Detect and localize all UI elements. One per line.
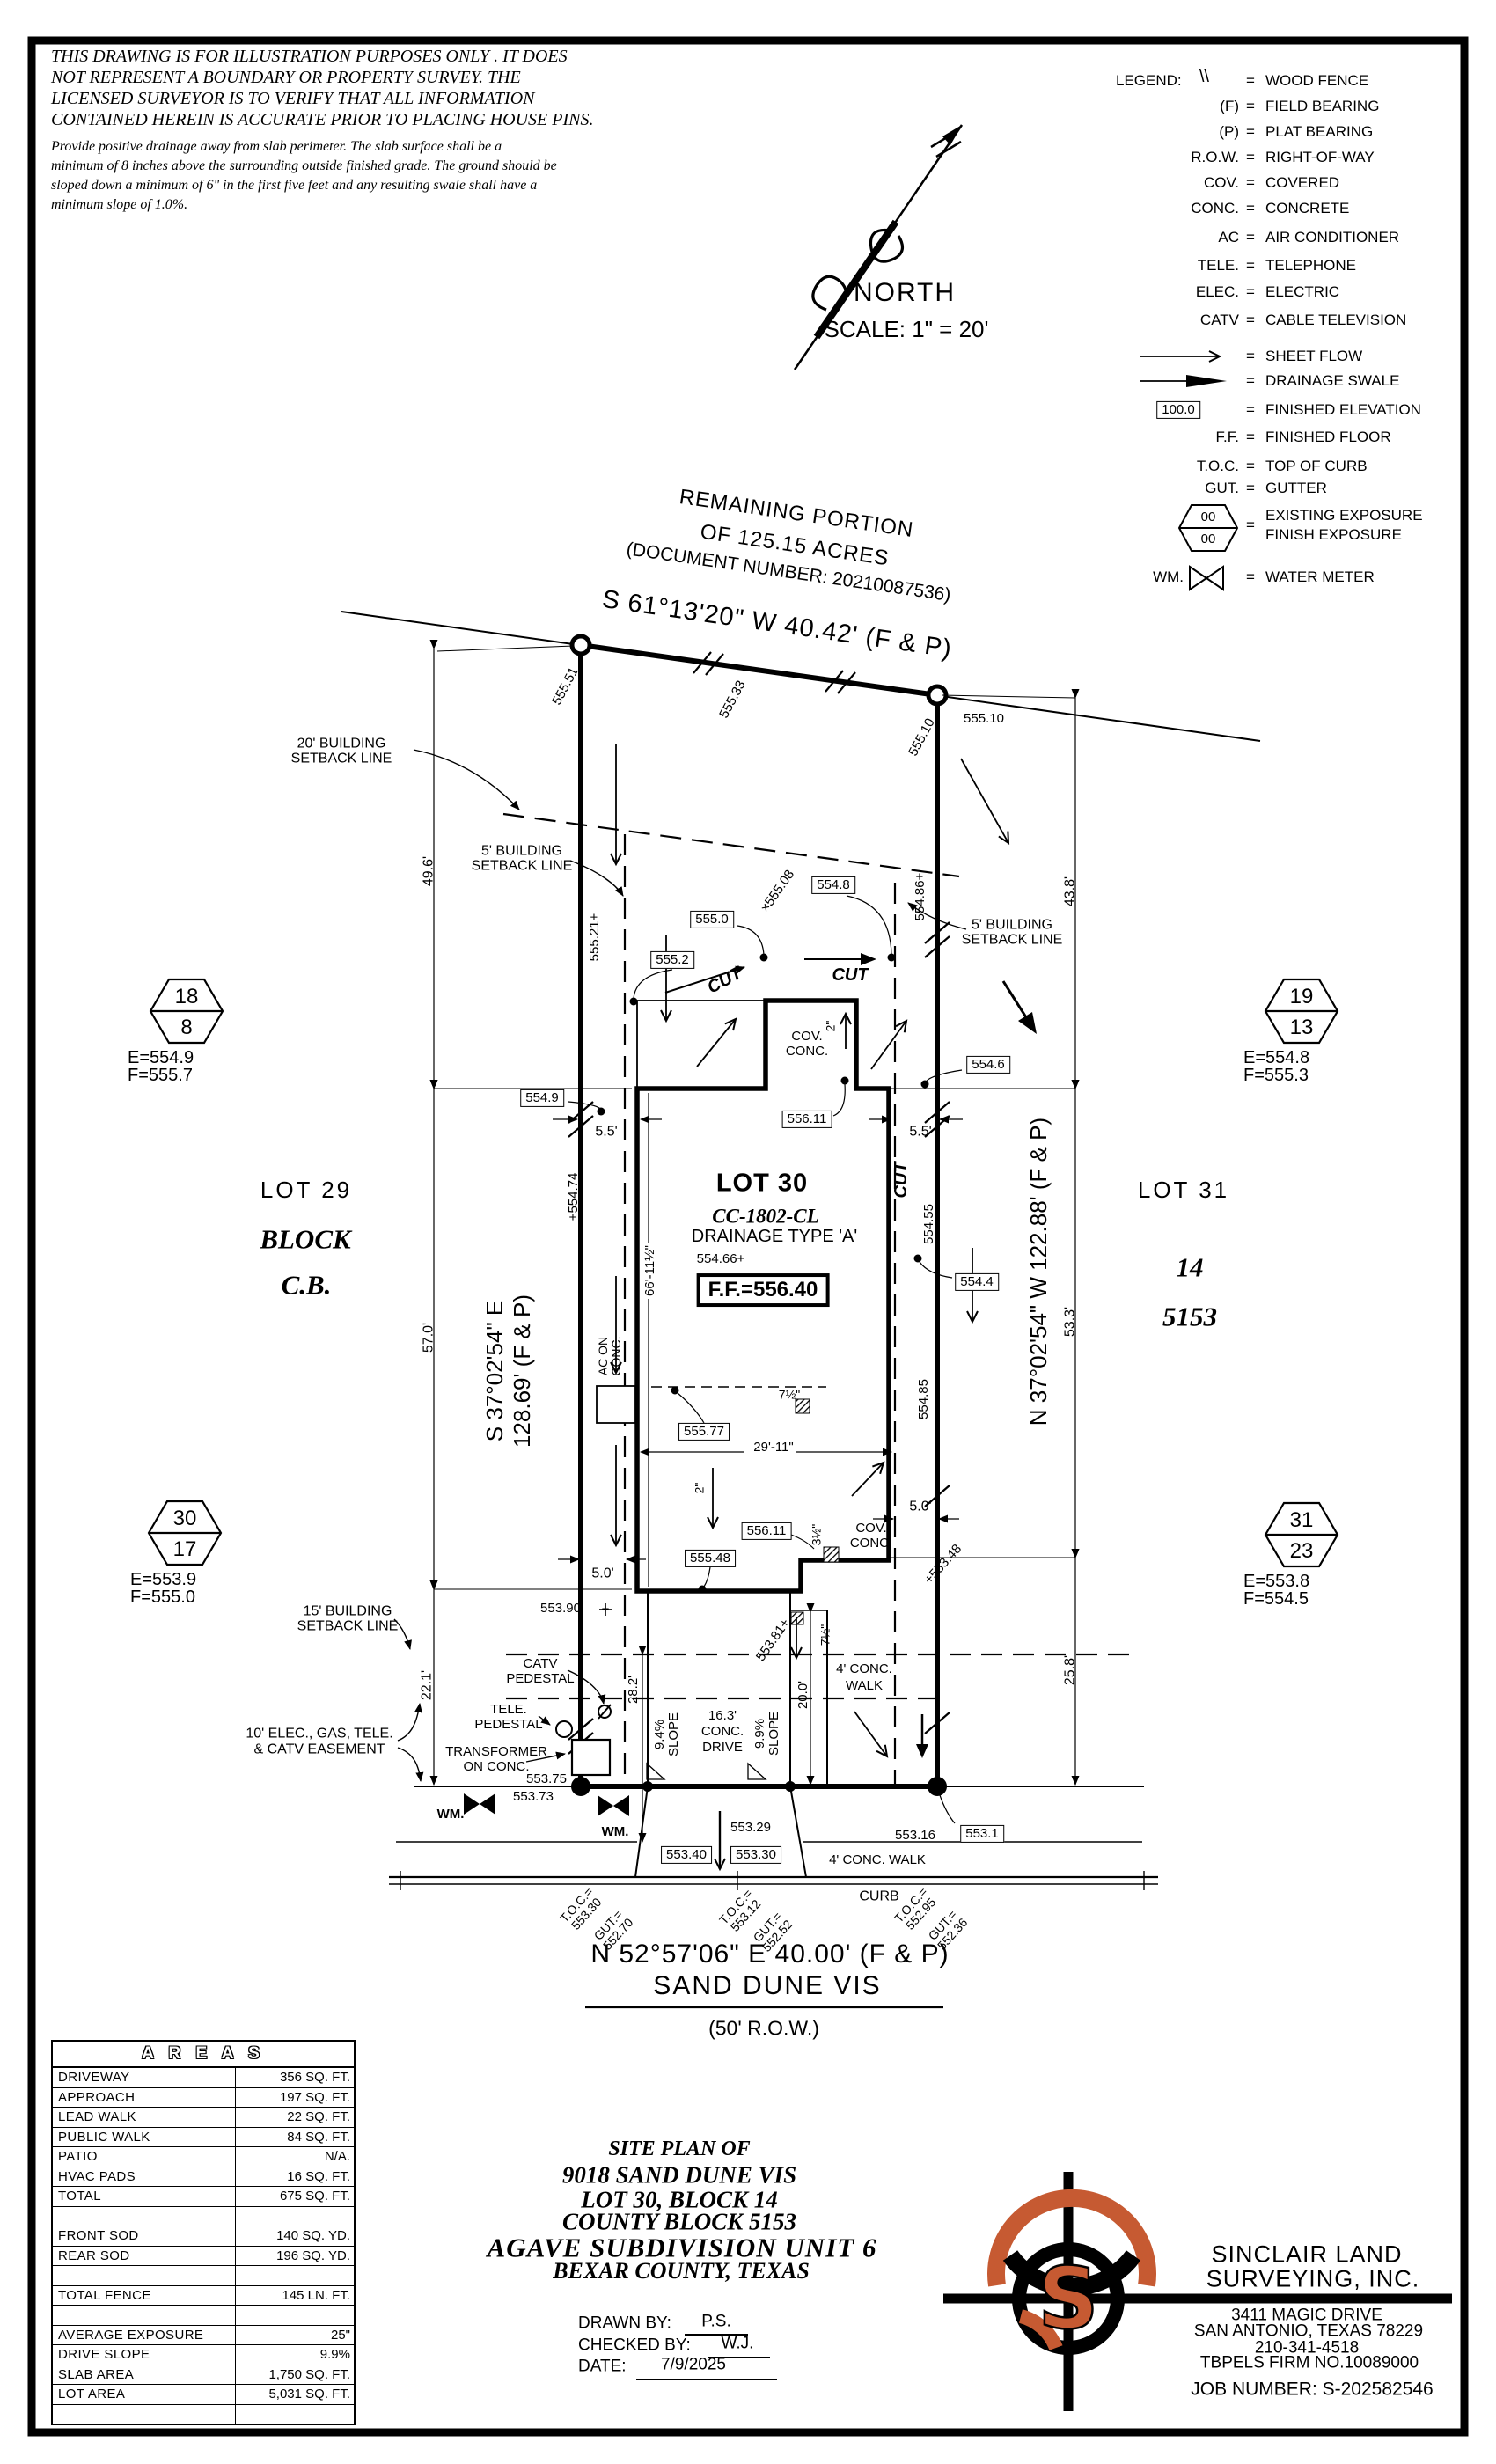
water-meter-label: WM. [602, 1825, 629, 1839]
dim-25-8: 25.8' [1062, 1655, 1077, 1685]
row-value: N/A. [235, 2147, 354, 2167]
dim-2in: 2" [693, 1483, 706, 1494]
legend-def: FIELD BEARING [1265, 99, 1379, 114]
scale-label: SCALE: 1" = 20' [825, 317, 989, 341]
pad-elevation: 554.66+ [697, 1252, 745, 1266]
table-row: DRIVEWAY356 SQ. FT. [53, 2067, 354, 2087]
legend-def: SHEET FLOW [1265, 348, 1362, 364]
row-label: LOT AREA [53, 2385, 235, 2404]
hex-finish: 23 [1290, 1540, 1314, 1563]
setback-20-label: SETBACK LINE [291, 751, 392, 766]
row-label: REAR SOD [53, 2247, 235, 2266]
legend-sym: CATV [1200, 312, 1239, 328]
row-label: APPROACH [53, 2088, 235, 2108]
logo-s: S [1038, 2249, 1098, 2348]
slope-word: SLOPE [767, 1712, 781, 1756]
row-value: 5,031 SQ. FT. [235, 2385, 354, 2404]
table-row: PUBLIC WALK84 SQ. FT. [53, 2127, 354, 2147]
block-number: 14 [1177, 1252, 1204, 1281]
setback-15-label: 15' BUILDING [304, 1603, 392, 1618]
equals: = [1246, 150, 1255, 165]
row-label [53, 2306, 235, 2325]
spot-elevation: 554.55 [922, 1204, 936, 1244]
legend-sym: R.O.W. [1191, 150, 1239, 165]
legend-def: CABLE TELEVISION [1265, 312, 1406, 328]
drainage-note-line: sloped down a minimum of 6" in the first… [51, 178, 537, 193]
bearing-east-line: N 37°02'54" W 122.88' (F & P) [1026, 1118, 1051, 1426]
cut-label: CUT [832, 966, 868, 986]
row-width: (50' R.O.W.) [708, 2018, 819, 2040]
row-value [235, 2207, 354, 2226]
drive-slope-east: 9.9% SLOPE [753, 1712, 781, 1756]
ac-label-1: AC ON [597, 1336, 610, 1375]
finished-elevation: 555.48 [685, 1550, 736, 1567]
table-row: DRIVE SLOPE9.9% [53, 2344, 354, 2365]
hex-f-value: F=555.0 [130, 1588, 195, 1608]
street-bearing: N 52°57'06" E 40.00' (F & P) [590, 1940, 949, 1969]
legend-sym: TELE. [1198, 258, 1239, 274]
covered-conc-label: COV. [855, 1522, 886, 1536]
plus-tick: + [602, 1602, 610, 1617]
dim-53-3: 53.3' [1062, 1307, 1077, 1337]
row-label: LEAD WALK [53, 2108, 235, 2127]
lot30-label: LOT 30 [716, 1170, 808, 1197]
county-block-line: COUNTY BLOCK 5153 [562, 2209, 796, 2234]
finished-elevation: 554.9 [520, 1089, 564, 1107]
row-value [235, 2405, 354, 2424]
hex-existing: 30 [173, 1507, 197, 1530]
street-name: SAND DUNE VIS [653, 1972, 881, 2000]
spot-elevation: 554.86+ [913, 873, 928, 921]
legend-sym: (F) [1220, 99, 1239, 114]
spot-elevation: 553.16 [895, 1829, 935, 1843]
row-value: 25" [235, 2326, 354, 2345]
county-block-number: 5153 [1162, 1302, 1217, 1331]
table-row: TOTAL675 SQ. FT. [53, 2186, 354, 2206]
spot-elevation: 553.75 [526, 1772, 567, 1786]
equals: = [1246, 429, 1255, 445]
table-row: APPROACH197 SQ. FT. [53, 2087, 354, 2108]
setback-5-label: SETBACK LINE [962, 932, 1063, 947]
equals: = [1246, 348, 1255, 364]
row-value: 9.9% [235, 2345, 354, 2365]
equals: = [1246, 569, 1255, 585]
lot29-label: LOT 29 [260, 1177, 352, 1202]
slope-word: SLOPE [667, 1712, 681, 1756]
legend-sym: WM. [1153, 569, 1184, 585]
row-label: DRIVEWAY [53, 2068, 235, 2087]
firm-name: SURVEYING, INC. [1206, 2266, 1420, 2292]
table-row: REAR SOD196 SQ. YD. [53, 2246, 354, 2266]
legend-def: COVERED [1265, 175, 1339, 191]
curb-label: CURB [859, 1888, 898, 1903]
easement-label: & CATV EASEMENT [253, 1742, 385, 1756]
row-label: FRONT SOD [53, 2226, 235, 2246]
equals: = [1246, 402, 1255, 418]
dim-29-11: 29'-11" [751, 1441, 796, 1455]
row-value: 1,750 SQ. FT. [235, 2365, 354, 2385]
bearing-west-1: S 37°02'54" E [481, 1294, 509, 1448]
equals: = [1246, 124, 1255, 140]
legend-def: WATER METER [1265, 569, 1375, 585]
equals: = [1246, 284, 1255, 300]
finished-elevation: 553.1 [960, 1825, 1004, 1843]
hex-finish: 17 [173, 1538, 197, 1561]
legend-sym: (P) [1219, 124, 1239, 140]
legend-def: CONCRETE [1265, 201, 1349, 216]
row-label [53, 2207, 235, 2226]
row-label [53, 2405, 235, 2424]
finished-elevation: 556.11 [782, 1111, 832, 1128]
table-row: LEAD WALK22 SQ. FT. [53, 2107, 354, 2127]
disclaimer-line: CONTAINED HEREIN IS ACCURATE PRIOR TO PL… [51, 111, 593, 130]
legend-def: FINISHED ELEVATION [1265, 402, 1421, 418]
row-label: TOTAL FENCE [53, 2286, 235, 2306]
finished-elevation: 554.4 [955, 1273, 999, 1291]
row-label: TOTAL [53, 2187, 235, 2206]
legend-def: TELEPHONE [1265, 258, 1356, 274]
dim-5-0: 5.0' [591, 1566, 613, 1580]
equals: = [1246, 480, 1255, 496]
legend-def: GUTTER [1265, 480, 1327, 496]
drawn-by-value: P.S. [701, 2314, 730, 2332]
finished-elevation: 554.6 [966, 1056, 1010, 1074]
spot-elevation: 554.85 [917, 1379, 931, 1419]
legend-sym: GUT. [1205, 480, 1239, 496]
spot-elevation: 555.21+ [588, 913, 602, 962]
table-row [53, 2404, 354, 2424]
firm-name: SINCLAIR LAND [1211, 2241, 1402, 2267]
bearing-west-line: S 37°02'54" E 128.69' (F & P) [481, 1294, 536, 1448]
row-value: 22 SQ. FT. [235, 2108, 354, 2127]
dim-20-0: 20.0' [796, 1681, 810, 1709]
legend-sym: CONC. [1191, 201, 1239, 216]
equals: = [1246, 230, 1255, 246]
legend-def: DRAINAGE SWALE [1265, 373, 1399, 389]
dim-3-5in: 3½" [810, 1524, 823, 1545]
hex-f-value: F=555.3 [1243, 1067, 1309, 1086]
hex-finish-value: 00 [1201, 532, 1216, 546]
disclaimer-line: LICENSED SURVEYOR IS TO VERIFY THAT ALL … [51, 90, 535, 109]
drainage-note-line: Provide positive drainage away from slab… [51, 139, 502, 154]
dim-22-1: 22.1' [419, 1670, 434, 1700]
disclaimer-line: THIS DRAWING IS FOR ILLUSTRATION PURPOSE… [51, 48, 568, 67]
equals: = [1246, 373, 1255, 389]
firm-license: TBPELS FIRM NO.10089000 [1200, 2355, 1419, 2373]
legend-def: FINISHED FLOOR [1265, 429, 1391, 445]
row-value [235, 2306, 354, 2325]
north-label: NORTH [854, 279, 956, 307]
setback-5-label: 5' BUILDING [481, 843, 562, 858]
date-label: DATE: [578, 2358, 627, 2377]
easement-label: 10' ELEC., GAS, TELE. [246, 1726, 392, 1741]
wood-fence-icon: \\ [1199, 68, 1209, 87]
areas-table: A R E A S DRIVEWAY356 SQ. FT. APPROACH19… [51, 2040, 356, 2425]
site-address: 9018 SAND DUNE VIS [562, 2162, 796, 2188]
hex-f-value: F=555.7 [128, 1067, 193, 1086]
checked-by-label: CHECKED BY: [578, 2337, 691, 2356]
table-row: FRONT SOD140 SQ. YD. [53, 2226, 354, 2246]
legend-sym: F.F. [1216, 429, 1239, 445]
equals: = [1246, 458, 1255, 474]
setback-15-label: SETBACK LINE [297, 1618, 399, 1633]
water-meter-label: WM. [437, 1808, 465, 1822]
block-label: BLOCK [260, 1224, 350, 1253]
spot-elevation: 553.73 [513, 1790, 554, 1804]
areas-title: A R E A S [53, 2042, 354, 2067]
legend-sym: T.O.C. [1197, 458, 1239, 474]
row-value: 196 SQ. YD. [235, 2247, 354, 2266]
finished-elevation: 553.30 [730, 1846, 781, 1864]
catv-pedestal-label: PEDESTAL [506, 1672, 574, 1686]
county-block-label: C.B. [282, 1270, 332, 1299]
row-label: PATIO [53, 2147, 235, 2167]
dim-49-6: 49.6' [421, 856, 436, 886]
finished-elevation: 555.0 [690, 911, 734, 928]
hex-existing: 31 [1290, 1509, 1314, 1532]
covered-conc-label: COV. [791, 1030, 822, 1044]
row-value: 16 SQ. FT. [235, 2167, 354, 2187]
hex-existing: 18 [175, 986, 199, 1008]
legend-def: AIR CONDITIONER [1265, 230, 1399, 246]
spot-elevation: 555.10 [964, 712, 1004, 726]
row-label: HVAC PADS [53, 2167, 235, 2187]
row-value [235, 2266, 354, 2285]
legend-def: RIGHT-OF-WAY [1265, 150, 1375, 165]
checked-by-value: W.J. [722, 2336, 754, 2354]
dim-28-2: 28.2' [627, 1676, 641, 1704]
equals: = [1246, 312, 1255, 328]
dim-5-5: 5.5' [909, 1124, 931, 1139]
dim-2in: 2" [824, 1021, 837, 1032]
table-row [53, 2265, 354, 2285]
covered-conc-label: CONC. [850, 1536, 892, 1551]
drainage-note-line: minimum slope of 1.0%. [51, 197, 187, 212]
finished-elevation: 556.11 [742, 1522, 792, 1540]
ac-pad-label: AC ON CONC. [597, 1336, 623, 1375]
finished-floor-value: F.F.=556.40 [697, 1273, 830, 1307]
setback-20-label: 20' BUILDING [297, 736, 386, 751]
table-row: HVAC PADS16 SQ. FT. [53, 2167, 354, 2187]
equals: = [1246, 258, 1255, 274]
dim-57-0: 57.0' [421, 1323, 436, 1353]
dim-7-5in: 7½" [818, 1624, 832, 1646]
county-state-line: BEXAR COUNTY, TEXAS [553, 2259, 810, 2284]
bearing-west-2: 128.69' (F & P) [509, 1294, 536, 1448]
setback-5-label: SETBACK LINE [472, 858, 573, 873]
row-value: 140 SQ. YD. [235, 2226, 354, 2246]
hex-finish: 8 [180, 1016, 192, 1039]
covered-conc-label: CONC. [786, 1045, 828, 1059]
dim-7-5in: 7½" [779, 1388, 800, 1401]
legend-def: EXISTING EXPOSURE [1265, 508, 1423, 524]
tele-pedestal-label: TELE. [490, 1703, 527, 1717]
site-plan-sheet: S THIS DRAWING IS FOR ILLUSTRATION PURPO… [0, 0, 1496, 2464]
transformer-label: ON CONC. [464, 1760, 530, 1774]
lot31-label: LOT 31 [1138, 1177, 1229, 1202]
legend-def: WOOD FENCE [1265, 73, 1368, 89]
finished-elevation: 554.8 [811, 876, 855, 894]
equals: = [1246, 73, 1255, 89]
row-label: AVERAGE EXPOSURE [53, 2326, 235, 2345]
slope-value: 9.4% [653, 1712, 667, 1756]
conc-walk-label: 4' CONC. WALK [829, 1853, 926, 1867]
equals: = [1246, 175, 1255, 191]
table-row: PATION/A. [53, 2146, 354, 2167]
ac-label-2: CONC. [610, 1336, 623, 1375]
row-label: DRIVE SLOPE [53, 2345, 235, 2365]
row-value: 675 SQ. FT. [235, 2187, 354, 2206]
hex-finish: 13 [1290, 1016, 1314, 1039]
row-label: PUBLIC WALK [53, 2128, 235, 2147]
drive-dim: 16.3' [708, 1709, 737, 1723]
job-number: JOB NUMBER: S-202582546 [1191, 2380, 1433, 2401]
table-row: LOT AREA5,031 SQ. FT. [53, 2384, 354, 2404]
hex-f-value: F=554.5 [1243, 1590, 1309, 1610]
row-value: 145 LN. FT. [235, 2286, 354, 2306]
dim-43-8: 43.8' [1062, 876, 1077, 906]
legend-sym: COV. [1204, 175, 1239, 191]
row-value: 84 SQ. FT. [235, 2128, 354, 2147]
walk-label: WALK [846, 1679, 883, 1693]
transformer-label: TRANSFORMER [445, 1745, 547, 1759]
legend-def: FINISH EXPOSURE [1265, 527, 1402, 543]
equals: = [1246, 517, 1255, 533]
date-value: 7/9/2025 [661, 2357, 726, 2375]
finished-elevation: 555.2 [650, 951, 694, 969]
table-row [53, 2206, 354, 2226]
spot-elevation: 553.29 [730, 1821, 771, 1835]
spot-elevation: 553.90 [540, 1602, 581, 1616]
spot-elevation: +554.74 [567, 1173, 581, 1221]
hex-existing-value: 00 [1201, 510, 1216, 524]
legend-def: ELECTRIC [1265, 284, 1339, 300]
table-row: AVERAGE EXPOSURE25" [53, 2325, 354, 2345]
drainage-type: DRAINAGE TYPE 'A' [692, 1228, 857, 1247]
row-label: SLAB AREA [53, 2365, 235, 2385]
slope-value: 9.9% [753, 1712, 767, 1756]
cut-label: CUT [892, 1162, 912, 1198]
table-row [53, 2305, 354, 2325]
row-label [53, 2266, 235, 2285]
title-line: SITE PLAN OF [608, 2138, 750, 2161]
walk-label: 4' CONC. [836, 1662, 892, 1676]
finished-elevation: 553.40 [661, 1846, 712, 1864]
catv-pedestal-label: CATV [524, 1657, 558, 1671]
drive-dim: CONC. [701, 1725, 744, 1739]
setback-5-label: 5' BUILDING [972, 917, 1052, 932]
finished-elevation-icon: 100.0 [1156, 401, 1200, 419]
finished-elevation: 555.77 [678, 1423, 730, 1441]
dim-5-0: 5.0' [909, 1499, 931, 1514]
dim-5-5: 5.5' [595, 1124, 617, 1139]
legend-sym: AC [1218, 230, 1239, 246]
legend-def: TOP OF CURB [1265, 458, 1368, 474]
dim-66-11: 66'-11½" [643, 1243, 657, 1299]
table-row: TOTAL FENCE145 LN. FT. [53, 2285, 354, 2306]
drive-dim: DRIVE [702, 1741, 743, 1755]
equals: = [1246, 201, 1255, 216]
table-row: SLAB AREA1,750 SQ. FT. [53, 2365, 354, 2385]
tele-pedestal-label: PEDESTAL [474, 1718, 542, 1732]
plan-number: CC-1802-CL [712, 1206, 818, 1228]
drawn-by-label: DRAWN BY: [578, 2315, 671, 2334]
legend-sym: ELEC. [1196, 284, 1239, 300]
row-value: 356 SQ. FT. [235, 2068, 354, 2087]
row-value: 197 SQ. FT. [235, 2088, 354, 2108]
equals: = [1246, 99, 1255, 114]
legend-title: LEGEND: [1116, 73, 1182, 89]
signature-line [636, 2379, 777, 2380]
legend-def: PLAT BEARING [1265, 124, 1373, 140]
drive-slope-west: 9.4% SLOPE [653, 1712, 681, 1756]
hex-existing: 19 [1290, 986, 1314, 1008]
disclaimer-line: NOT REPRESENT A BOUNDARY OR PROPERTY SUR… [51, 69, 521, 88]
drainage-note-line: minimum of 8 inches above the surroundin… [51, 158, 557, 173]
